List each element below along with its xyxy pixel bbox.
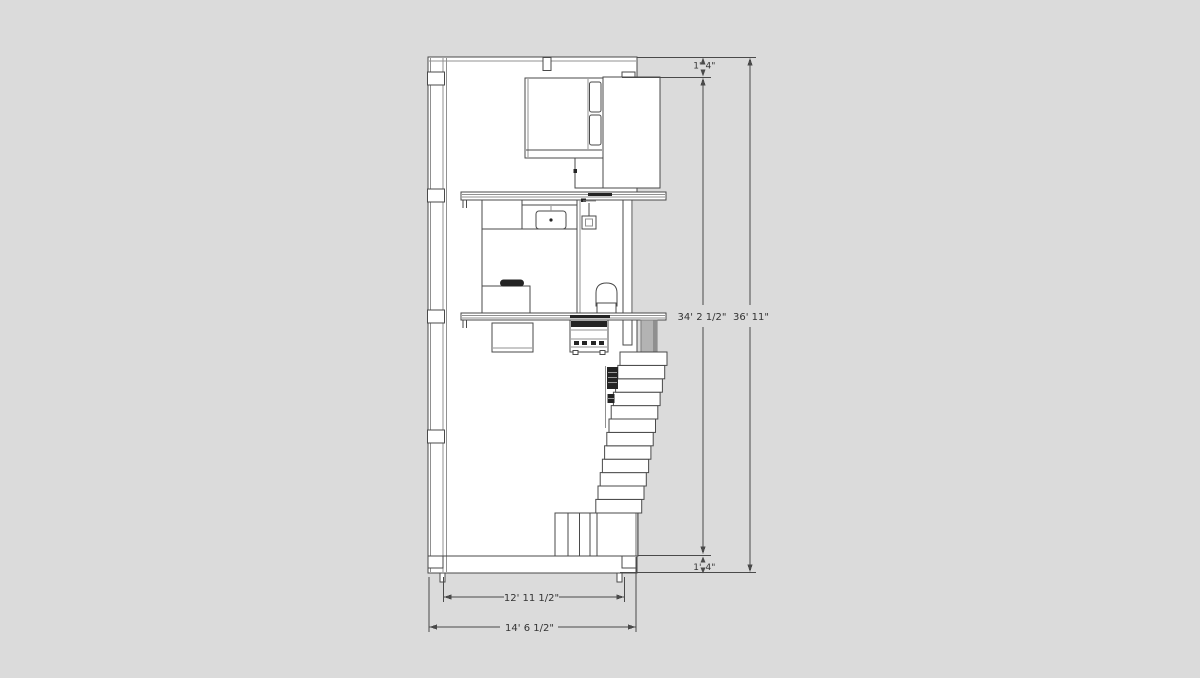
arrow-up-icon	[747, 58, 752, 66]
stove-knob	[591, 341, 596, 345]
exterior-gap	[633, 201, 639, 313]
sink-drain	[549, 218, 552, 221]
stair-step	[611, 406, 658, 419]
stair-column-shade	[653, 321, 657, 353]
cabinet-item	[500, 280, 524, 287]
stair-step	[605, 446, 651, 459]
wall-marker	[428, 72, 445, 85]
toilet-tank	[597, 303, 616, 313]
floor-band	[461, 192, 666, 200]
arrow-down-icon	[747, 565, 752, 573]
bottom-offset-feet: 1'	[693, 563, 701, 573]
bathroom-right-wall	[623, 200, 632, 313]
stove-back-panel	[571, 321, 607, 327]
wall-marker-top	[543, 58, 551, 71]
arrow-down-icon	[700, 547, 705, 555]
handrail-segment	[588, 193, 612, 196]
arrow-right-icon	[628, 624, 636, 629]
wall-marker	[428, 310, 445, 323]
stair-step	[620, 352, 667, 365]
top-offset-inches: 4"	[706, 62, 716, 72]
pillow	[590, 82, 602, 112]
landing-edge-shade	[635, 514, 638, 556]
arrow-left-icon	[429, 624, 437, 629]
stair-step	[600, 473, 646, 486]
arrow-up-icon	[700, 78, 705, 86]
dimension-top-offset: 1' 4"	[693, 58, 715, 77]
wall-marker	[428, 189, 445, 202]
handrail-segment	[570, 315, 610, 318]
stair-step	[596, 499, 642, 513]
loft-panel	[603, 77, 660, 188]
shower-head-icon	[582, 216, 596, 229]
stair-step	[613, 392, 660, 405]
bottom-wall-notch	[428, 556, 443, 568]
overall-width-label: 14' 6 1/2"	[505, 623, 554, 634]
loft-cabinet	[575, 158, 603, 188]
interior-height-label: 34' 2 1/2"	[678, 312, 727, 323]
foundation-post	[617, 573, 622, 582]
kitchen-right-wall	[623, 320, 632, 345]
bottom-offset-inches: 4"	[706, 563, 716, 573]
interior-width-label: 12' 11 1/2"	[504, 593, 559, 604]
stove-foot	[600, 351, 605, 355]
stair-step	[602, 459, 648, 472]
arrow-right-icon	[617, 594, 625, 599]
dimension-bottom-offset: 1' 4"	[693, 557, 715, 574]
stair-step	[618, 365, 665, 378]
bottom-wall-notch	[622, 556, 637, 568]
floor-plan-canvas[interactable]: 36' 11" 34' 2 1/2" 1' 4" 1' 4" 12' 11 1/…	[0, 0, 1200, 678]
arrow-up-icon	[701, 557, 706, 563]
stair-step	[598, 486, 644, 499]
floor-band	[461, 313, 666, 320]
overall-height-label: 36' 11"	[733, 312, 769, 323]
stove-knob	[582, 341, 587, 345]
cabinet-handle	[574, 169, 578, 173]
arrow-left-icon	[444, 594, 452, 599]
foundation-post	[440, 573, 445, 582]
pillow	[590, 115, 602, 145]
stove-knob	[599, 341, 604, 345]
vanity-cabinet	[482, 200, 522, 229]
stair-step	[616, 379, 663, 392]
bathroom-cabinet	[482, 286, 530, 313]
stair-step	[607, 432, 653, 445]
wall-marker	[428, 430, 445, 443]
stair-step	[609, 419, 656, 432]
stove-foot	[573, 351, 578, 355]
stove-knob	[574, 341, 579, 345]
top-offset-feet: 1'	[693, 62, 701, 72]
